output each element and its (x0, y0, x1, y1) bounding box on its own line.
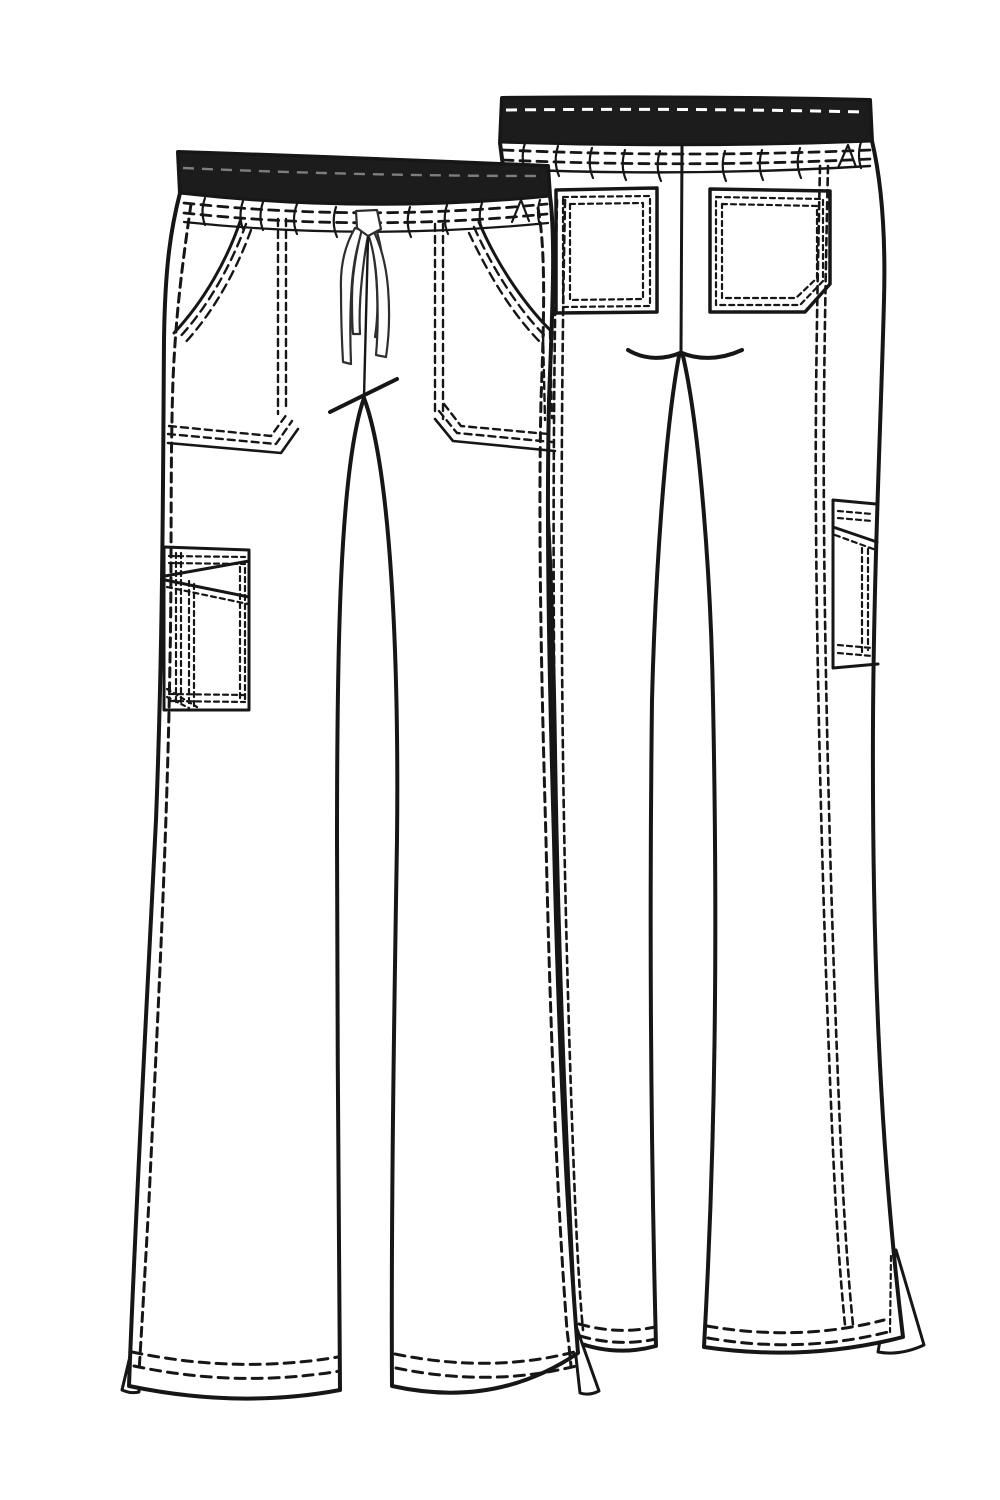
technical-flat-canvas (0, 0, 1000, 1500)
front-waistband (178, 152, 550, 204)
scrub-pants-flat-sketch (0, 0, 1000, 1500)
back-center-seam (681, 145, 682, 352)
back-vent-stitch-right (890, 1256, 891, 1332)
back-waistband (500, 97, 872, 144)
front-silhouette (129, 152, 578, 1399)
front-view (122, 152, 599, 1399)
